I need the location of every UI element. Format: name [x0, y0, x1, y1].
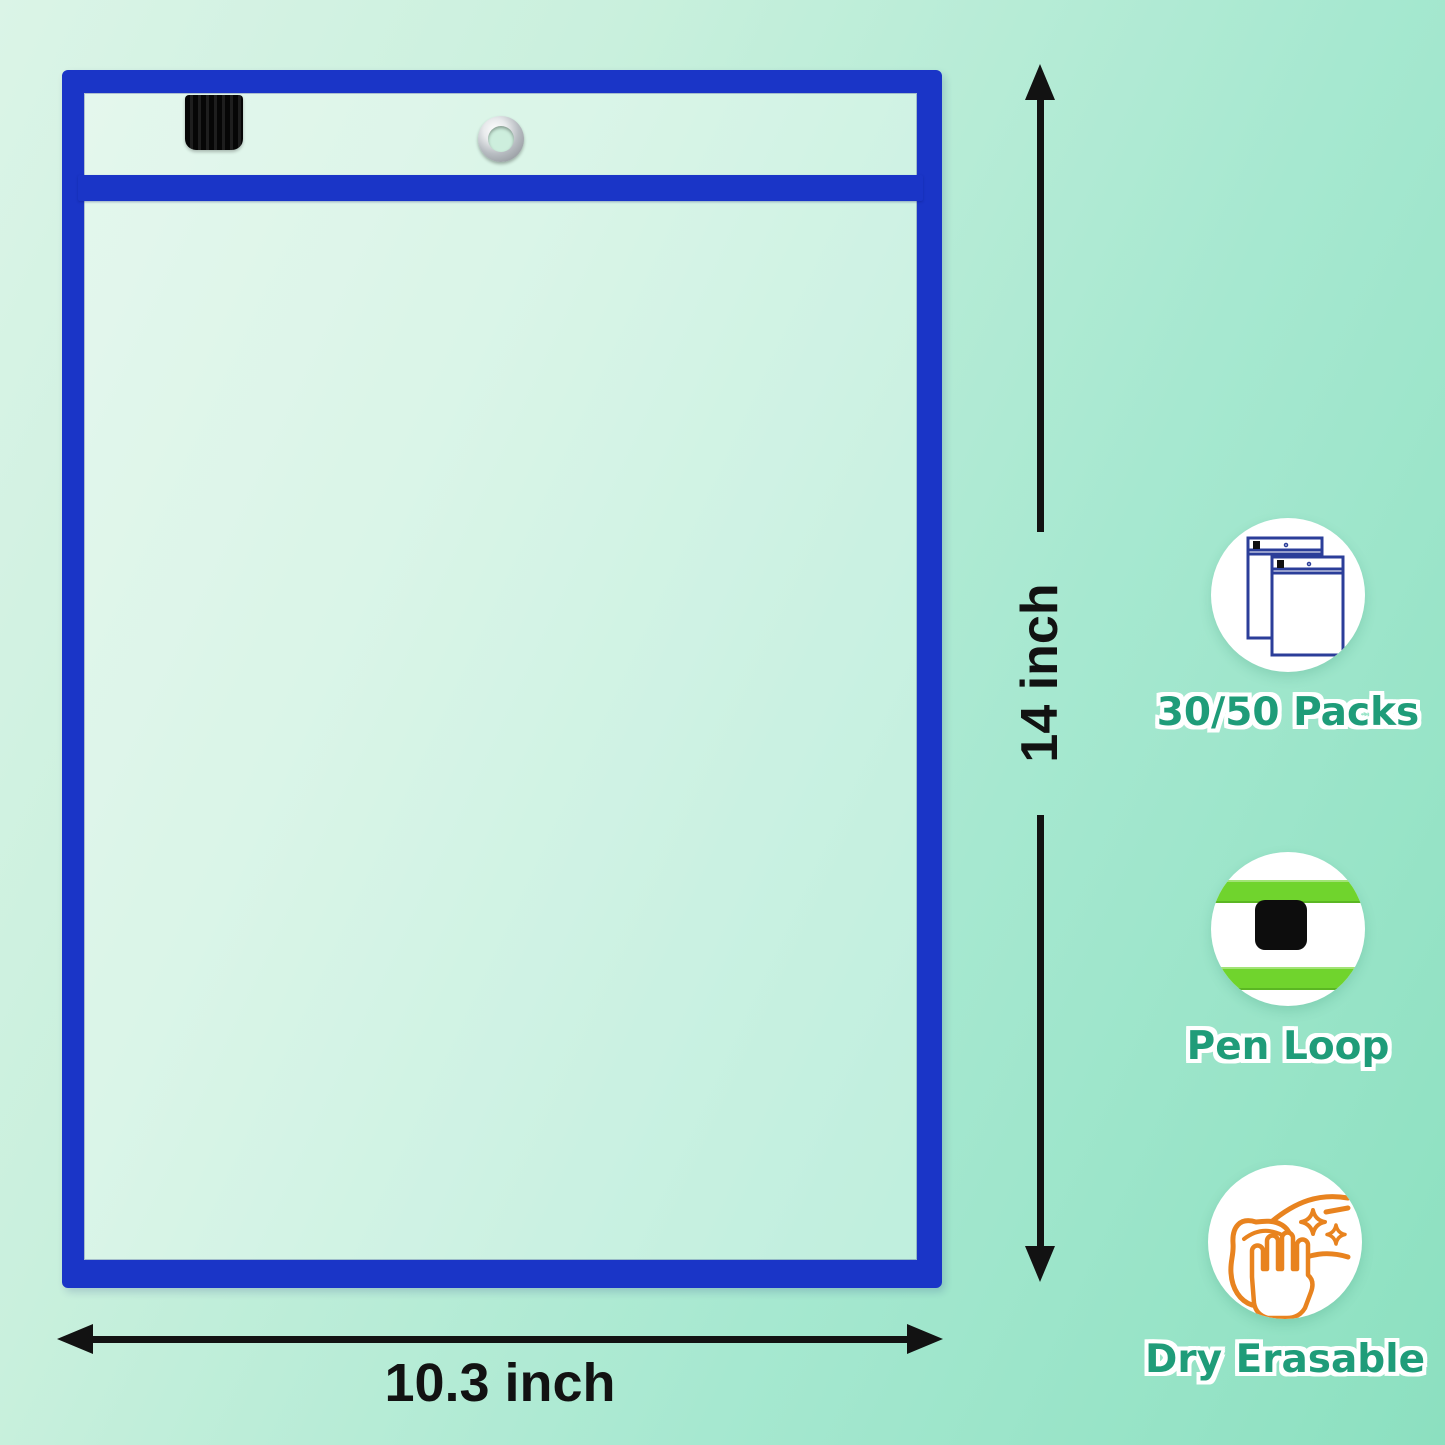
dimension-line	[1037, 815, 1044, 1247]
hanging-grommet	[478, 116, 524, 162]
wipe-hand-icon	[1208, 1165, 1362, 1319]
arrow-right-icon	[907, 1324, 943, 1354]
arrow-left-icon	[57, 1324, 93, 1354]
feature-label: 30/50 Packs	[1157, 690, 1420, 735]
feature-dry-erasable: Dry Erasable	[1175, 1165, 1395, 1382]
green-stripe	[1211, 967, 1365, 990]
width-dimension	[57, 1324, 943, 1354]
arrow-up-icon	[1025, 64, 1055, 100]
feature-pen-loop: Pen Loop	[1178, 852, 1398, 1069]
feature-label: Dry Erasable	[1145, 1337, 1425, 1382]
width-label: 10.3 inch	[57, 1352, 943, 1414]
black-loop-tab	[1255, 900, 1307, 950]
height-dimension: 14 inch	[1020, 64, 1060, 1282]
dry-erase-pocket	[62, 70, 942, 1288]
dimension-line	[93, 1336, 907, 1343]
feature-packs: 30/50 Packs	[1178, 518, 1398, 735]
pocket-header-divider	[78, 175, 923, 201]
arrow-down-icon	[1025, 1246, 1055, 1282]
feature-label: Pen Loop	[1187, 1024, 1390, 1069]
product-image: 14 inch 10.3 inch	[0, 0, 1445, 1445]
height-label: 14 inch	[1010, 583, 1070, 762]
pockets-stack-icon	[1211, 518, 1365, 672]
pen-loop-tab	[185, 95, 243, 150]
dimension-line	[1037, 100, 1044, 532]
pen-loop-icon	[1211, 852, 1365, 1006]
grommet-hole	[488, 126, 514, 152]
